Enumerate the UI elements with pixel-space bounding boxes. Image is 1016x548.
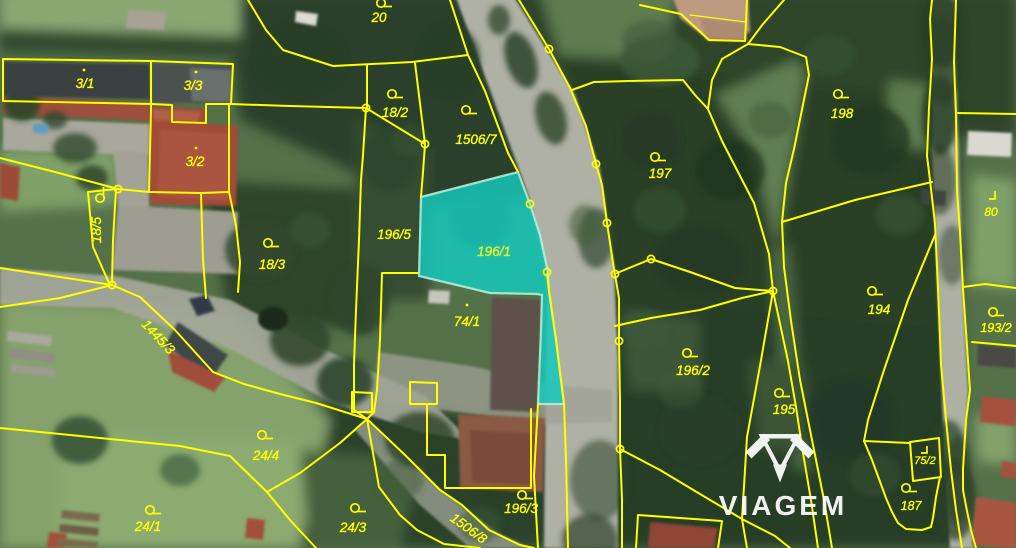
svg-text:1506/7: 1506/7 xyxy=(455,132,497,147)
svg-text:18/5: 18/5 xyxy=(89,216,104,243)
svg-text:196/5: 196/5 xyxy=(377,227,411,242)
svg-text:3/3: 3/3 xyxy=(184,78,203,93)
svg-text:198: 198 xyxy=(831,106,854,121)
svg-text:80: 80 xyxy=(984,205,998,219)
svg-text:197: 197 xyxy=(649,166,672,181)
svg-text:VIAGEM: VIAGEM xyxy=(719,490,847,521)
svg-text:194: 194 xyxy=(868,302,891,317)
svg-text:195: 195 xyxy=(773,402,796,417)
svg-text:24/4: 24/4 xyxy=(252,448,279,463)
svg-text:196/2: 196/2 xyxy=(676,363,710,378)
svg-text:193/2: 193/2 xyxy=(980,321,1011,335)
svg-text:24/1: 24/1 xyxy=(134,519,161,534)
svg-text:74/1: 74/1 xyxy=(454,314,480,329)
svg-text:75/2: 75/2 xyxy=(914,455,935,467)
svg-text:18/2: 18/2 xyxy=(382,105,409,120)
svg-text:24/3: 24/3 xyxy=(339,520,367,535)
svg-text:18/3: 18/3 xyxy=(259,257,286,272)
svg-text:196/3: 196/3 xyxy=(504,501,538,516)
svg-text:196/1: 196/1 xyxy=(477,244,511,259)
svg-text:20: 20 xyxy=(370,10,387,25)
svg-text:3/2: 3/2 xyxy=(186,154,205,169)
svg-text:3/1: 3/1 xyxy=(76,76,95,91)
svg-text:187: 187 xyxy=(901,499,923,513)
